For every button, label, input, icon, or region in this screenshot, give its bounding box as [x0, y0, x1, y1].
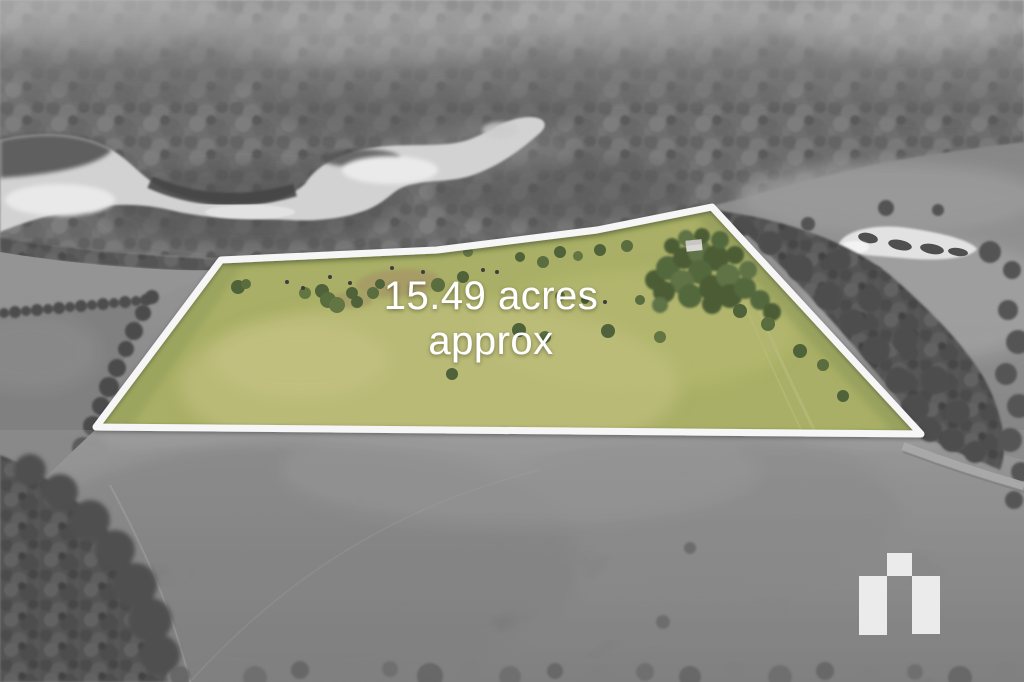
logo-right-block: [912, 576, 940, 634]
atmospheric-haze: [0, 0, 1024, 110]
aerial-property-photo: 15.49 acres approx: [0, 0, 1024, 682]
aerial-photo-canvas: 15.49 acres approx: [0, 0, 1024, 682]
logo-left-block: [859, 576, 887, 635]
area-approx-text: approx: [428, 319, 553, 363]
logo-top-block: [887, 553, 912, 576]
area-value-text: 15.49 acres: [384, 274, 599, 318]
